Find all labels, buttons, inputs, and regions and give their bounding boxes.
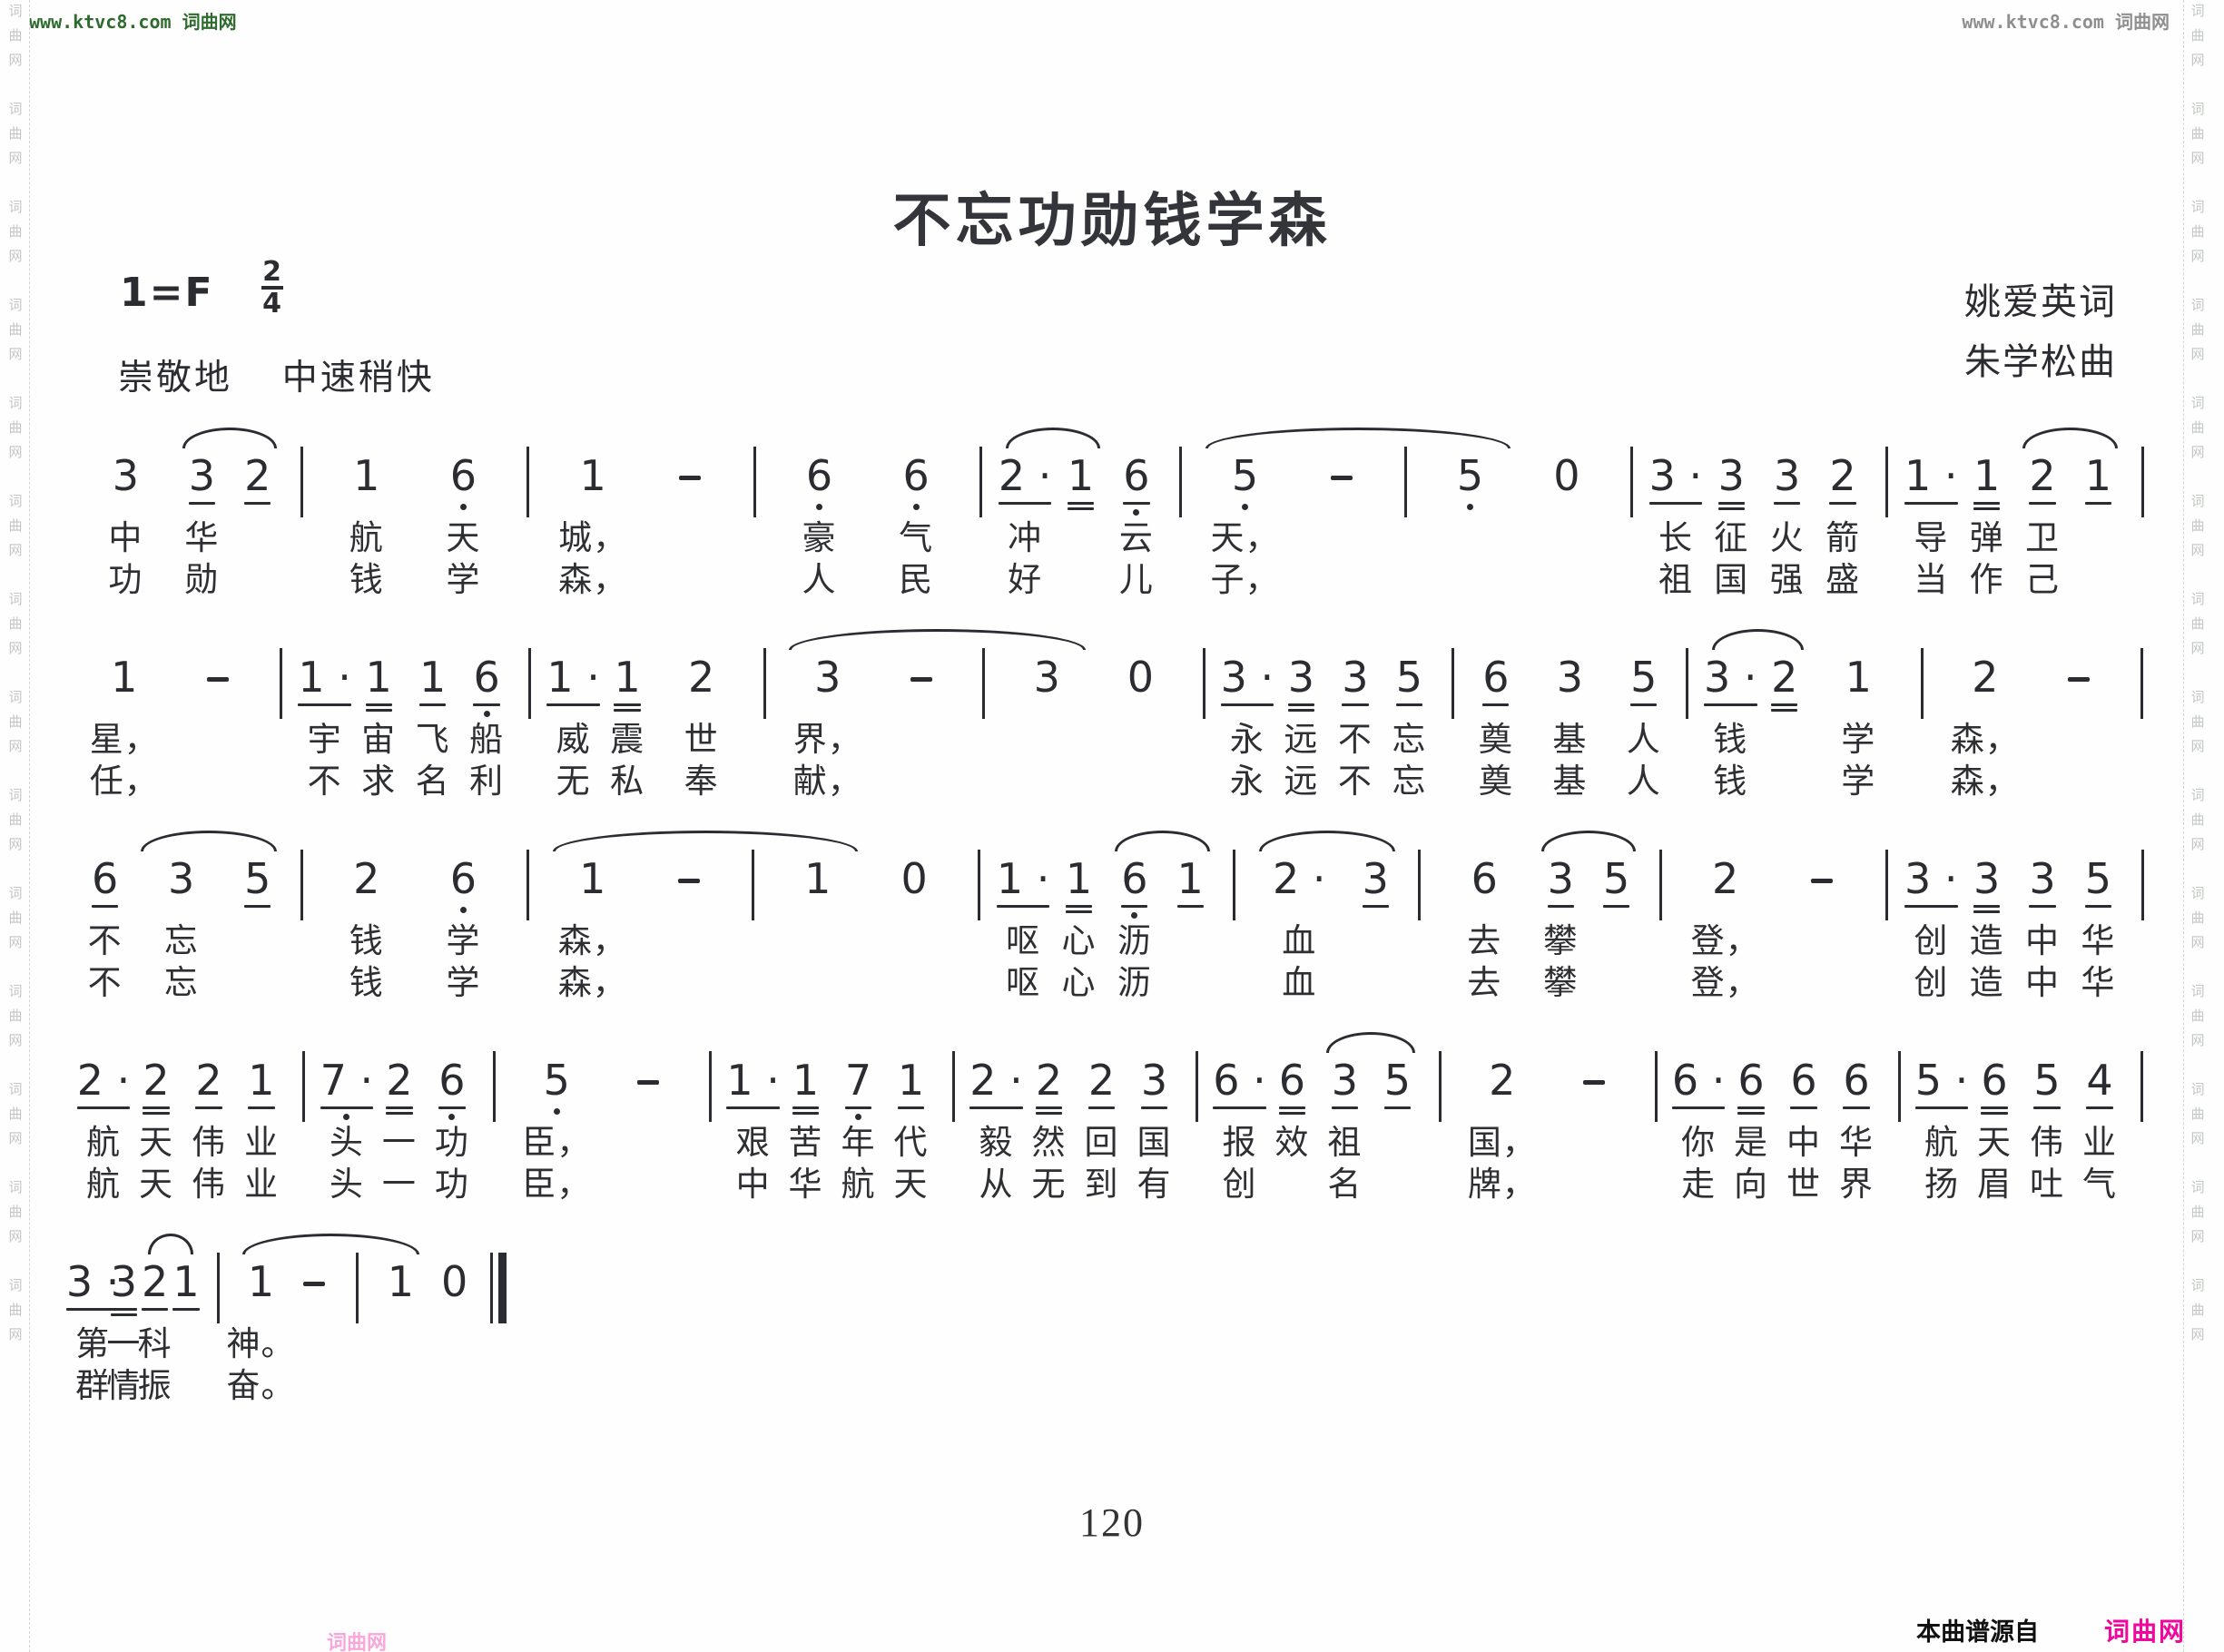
slur-group: 3忘忘5 [133, 831, 285, 1006]
page-title: 不忘功勋钱学森 [0, 174, 2224, 258]
barline [512, 428, 545, 519]
note-cell: 1神。奋。 [234, 1234, 288, 1409]
lyric-syllable: 震 [610, 721, 645, 762]
lyric-syllable [644, 1165, 653, 1207]
lyric-syllable: 第 [75, 1325, 110, 1367]
note-cell: 7年航 [832, 1033, 885, 1207]
lyric-syllable [1817, 922, 1826, 964]
note-cell: 6效 [1265, 1033, 1318, 1207]
lyric-syllable: 是 [1734, 1124, 1768, 1165]
slur-group: 5天，子， 5 [1197, 428, 1519, 603]
lyric-syllable: 钱 [349, 561, 384, 603]
lyric-syllable [2074, 721, 2083, 762]
lyric-syllable: 一 [382, 1124, 417, 1165]
lyric-syllable: 名 [416, 762, 450, 804]
lyric-syllable: 任， [90, 762, 159, 804]
duration-dash [171, 630, 264, 804]
lyric-syllable: 向 [1734, 1165, 1768, 1207]
barline [938, 1033, 970, 1124]
barline [1180, 1033, 1213, 1124]
lyric-syllable [910, 964, 919, 1006]
meter-numerator: 2 [262, 259, 281, 285]
note-cell: 5伟吐 [2021, 1033, 2073, 1207]
lyric-syllable: 弹 [1970, 519, 2004, 561]
lyric-syllable: 沥 [1117, 922, 1152, 964]
slur-group: 2卫己1 [2014, 428, 2126, 603]
slur-group: 6沥沥1 [1107, 831, 1218, 1006]
note-cell: 5 [1422, 428, 1519, 603]
lyric-syllable [1371, 964, 1380, 1006]
note-cell: 1 ·威无 [546, 630, 600, 804]
lyric-syllable: 国 [1137, 1124, 1171, 1165]
lyric-syllable: 世 [1786, 1165, 1821, 1207]
lyric-syllable: 回 [1084, 1124, 1118, 1165]
note-cell: 1心心 [1051, 831, 1107, 1006]
music-system-5: 3 ·第群3一情2科振1 1神。奋。 1 0 [77, 1234, 515, 1409]
note-cell: 6奠奠 [1469, 630, 1522, 804]
lyric-syllable: 星， [90, 721, 159, 762]
lyric-syllable: 勋 [184, 561, 219, 603]
footer-source-logo: 词曲网 [2104, 1612, 2186, 1648]
lyric-syllable: 献， [793, 762, 862, 804]
lyric-syllable: 宙 [361, 721, 396, 762]
lyric-syllable: 群 [75, 1367, 110, 1409]
lyric-syllable [1186, 922, 1195, 964]
barline [512, 831, 545, 922]
lyric-syllable: 好 [1008, 561, 1042, 603]
lyric-syllable [396, 1367, 405, 1409]
lyric-syllable: 国， [1468, 1124, 1537, 1165]
note-cell: 5 [1589, 831, 1644, 1006]
lyric-syllable: 远 [1284, 721, 1318, 762]
lyric-syllable [1076, 561, 1085, 603]
key-signature: 1=F 2 4 [120, 268, 283, 326]
barline [1218, 831, 1251, 922]
note-cell: 2一一 [373, 1033, 426, 1207]
note-cell: 1城，森， [545, 428, 642, 603]
lyric-syllable: 征 [1714, 519, 1748, 561]
lyric-syllable: 不 [88, 964, 123, 1006]
barline [694, 1033, 727, 1124]
lyric-syllable: 不 [88, 922, 123, 964]
note-cell: 6华界 [1830, 1033, 1883, 1207]
lyric-syllable [253, 561, 262, 603]
lyric-syllable: 飞 [416, 721, 450, 762]
lyric-syllable [916, 721, 925, 762]
lyric-syllable: 头 [330, 1165, 364, 1207]
lyric-syllable: 振 [138, 1367, 172, 1409]
lyric-syllable: 到 [1084, 1165, 1118, 1207]
note-cell: 7 ·头头 [320, 1033, 373, 1207]
lyric-syllable: 忘 [1392, 762, 1426, 804]
lyric-syllable: 奠 [1479, 721, 1513, 762]
duration-dash [288, 1234, 341, 1409]
lyric-syllable: 天 [894, 1165, 929, 1207]
lyric-syllable: 学 [446, 964, 480, 1006]
barline [265, 630, 298, 721]
lyric-syllable [685, 519, 694, 561]
barline [965, 428, 998, 519]
lyric-syllable: 华 [184, 519, 219, 561]
lyric-syllable: 忘 [1392, 721, 1426, 762]
note-cell: 6沥沥 [1107, 831, 1162, 1006]
note-cell: 3 [1000, 630, 1094, 804]
barline [962, 831, 995, 922]
lyric-syllable: 永 [1230, 762, 1265, 804]
lyric-syllable: 箭 [1825, 519, 1860, 561]
lyric-syllable: 中 [736, 1165, 771, 1207]
lyric-syllable [182, 1325, 191, 1367]
lyric-syllable: 天 [139, 1124, 173, 1165]
lyric-syllable: 森， [558, 964, 627, 1006]
footer-source: 本曲谱源自 词曲网 [1916, 1612, 2186, 1648]
barline [478, 1033, 511, 1124]
lyric-syllable: 森， [1951, 762, 2020, 804]
lyric-syllable [253, 922, 262, 964]
note-cell: 3基基 [1523, 630, 1617, 804]
note-cell: 3 ·长祖 [1648, 428, 1703, 603]
note-cell: 5华华 [2071, 831, 2126, 1006]
lyric-syllable: 从 [979, 1165, 1014, 1207]
lyric-syllable: 学 [1841, 721, 1875, 762]
note-cell: 2国，牌， [1456, 1033, 1548, 1207]
note-cell: 3 ·第群 [77, 1234, 108, 1409]
note-cell: 5人人 [1617, 630, 1670, 804]
lyric-syllable: 功 [435, 1165, 469, 1207]
lyric-syllable: 界， [793, 721, 862, 762]
lyric-syllable: 忘 [164, 964, 199, 1006]
note-cell: 1弹作 [1959, 428, 2014, 603]
lyric-syllable [2093, 519, 2102, 561]
lyric-syllable: 攀 [1543, 922, 1578, 964]
barline [2126, 1033, 2159, 1124]
lyric-syllable: 人 [1627, 762, 1661, 804]
lyric-syllable: 代 [894, 1124, 929, 1165]
note-cell: 3界，献， [781, 630, 874, 804]
lyric-syllable: 钱 [349, 922, 384, 964]
watermark-top-left: www.ktvc8.com 词曲网 [29, 7, 237, 34]
lyric-syllable: 盛 [1825, 561, 1860, 603]
lyric-syllable: 创 [1914, 922, 1948, 964]
note-cell: 5 ·航扬 [1915, 1033, 1968, 1207]
lyric-syllable: 气 [2082, 1165, 2117, 1207]
lyric-syllable [644, 1124, 653, 1165]
lyric-syllable: 年 [841, 1124, 876, 1165]
lyric-syllable [1287, 1165, 1296, 1207]
lyric-syllable: 火 [1770, 519, 1805, 561]
lyric-syllable: 牌， [1468, 1165, 1537, 1207]
note-cell: 3华勋 [174, 428, 230, 603]
note-cell: 5忘忘 [1383, 630, 1436, 804]
lyric-syllable [1392, 1124, 1402, 1165]
music-system-2: 1星，任， 1 ·宇不1宙求1飞名6船利1 ·威无1震私2世奉3界，献， 3 0… [77, 630, 2159, 804]
lyric-syllable: 冲 [1008, 519, 1042, 561]
lyric-syllable: 臣， [522, 1124, 591, 1165]
lyric-syllable [813, 922, 822, 964]
lyric-syllable: 天 [139, 1165, 173, 1207]
barline [1905, 630, 1938, 721]
lyric-syllable: 去 [1467, 964, 1501, 1006]
rest-cell: 0 [1519, 428, 1616, 603]
note-cell: 2 ·冲好 [998, 428, 1053, 603]
note-cell: 1宙求 [351, 630, 405, 804]
note-cell: 3火强 [1759, 428, 1815, 603]
lyric-syllable [1611, 964, 1620, 1006]
note-cell: 6是向 [1725, 1033, 1777, 1207]
note-cell: 1 [374, 1234, 428, 1409]
lyric-syllable: 航 [349, 519, 384, 561]
lyric-syllable: 登， [1691, 922, 1760, 964]
lyric-syllable: 创 [1914, 964, 1948, 1006]
lyric-syllable [182, 1367, 191, 1409]
lyric-syllable: 求 [361, 762, 396, 804]
slur-group: 2 ·冲好1 [998, 428, 1109, 603]
barline [2126, 428, 2159, 519]
note-cell: 1航钱 [318, 428, 415, 603]
barline [748, 630, 781, 721]
lyric-syllable: 造 [1970, 964, 2004, 1006]
barline [1165, 428, 1197, 519]
footer-source-label: 本曲谱源自 [1916, 1612, 2039, 1647]
note-cell: 6 ·报创 [1213, 1033, 1265, 1207]
lyric-syllable [1336, 561, 1345, 603]
lyric-syllable: 界 [1839, 1165, 1874, 1207]
composer-credit: 朱学松曲 [1964, 332, 2117, 392]
barline [2126, 831, 2159, 922]
key-note: 1=F [120, 268, 214, 319]
lyric-syllable: 世 [684, 721, 719, 762]
note-cell: 1业业 [235, 1033, 288, 1207]
note-cell: 2科振 [140, 1234, 171, 1409]
note-cell: 1代天 [885, 1033, 938, 1207]
lyric-syllable: 情 [106, 1367, 141, 1409]
lyric-syllable: 航 [1924, 1124, 1959, 1165]
lyric-syllable [1186, 964, 1195, 1006]
note-cell: 1 [1053, 428, 1108, 603]
note-cell: 1 ·宇不 [298, 630, 351, 804]
lyric-syllable: 航 [86, 1165, 121, 1207]
duration-dash [603, 1033, 694, 1207]
note-cell: 1 [770, 831, 866, 1006]
lyric-syllable: 云 [1119, 519, 1154, 561]
note-cell: 3中中 [2014, 831, 2070, 1006]
lyric-syllable: 扬 [1924, 1165, 1959, 1207]
note-cell: 2世奉 [654, 630, 748, 804]
lyric-syllable [450, 1367, 459, 1409]
note-cell: 3远远 [1274, 630, 1328, 804]
lyric-syllable: 航 [841, 1165, 876, 1207]
lyric-syllable: 眉 [1977, 1165, 2012, 1207]
lyric-syllable: 威 [556, 721, 591, 762]
lyric-syllable: 华 [1839, 1124, 1874, 1165]
lyric-syllable: 科 [138, 1325, 172, 1367]
lyric-syllable: 利 [469, 762, 504, 804]
lyric-syllable: 业 [244, 1165, 279, 1207]
note-cell: 3 ·创创 [1904, 831, 1959, 1006]
barline [1644, 831, 1677, 922]
lyric-syllable: 学 [446, 922, 480, 964]
lyric-syllable: 奠 [1479, 762, 1513, 804]
lyric-syllable: 艰 [736, 1124, 771, 1165]
lyric-syllable: 呕 [1006, 964, 1040, 1006]
lyric-syllable: 儿 [1119, 561, 1154, 603]
meter-denominator: 4 [262, 290, 281, 317]
lyric-syllable: 毅 [979, 1124, 1014, 1165]
lyric-syllable: 吐 [2030, 1165, 2064, 1207]
lyric-syllable: 宇 [308, 721, 342, 762]
note-cell: 1 ·呕呕 [995, 831, 1050, 1006]
lyric-syllable: 不 [1338, 721, 1373, 762]
lyric-syllable: 不 [1338, 762, 1373, 804]
barline [1871, 831, 1904, 922]
note-cell: 2钱钱 [318, 831, 415, 1006]
note-cell: 2箭盛 [1815, 428, 1870, 603]
lyric-syllable: 祖 [1658, 561, 1693, 603]
lyric-syllable: 一 [382, 1165, 417, 1207]
note-cell: 3造造 [1959, 831, 2014, 1006]
note-cell: 5天，子， [1197, 428, 1294, 603]
note-cell: 3 ·钱钱 [1704, 630, 1758, 804]
note-cell: 1森，森， [545, 831, 641, 1006]
slur-group: 3界，献， 3 [781, 630, 1093, 804]
slur-group: 2科振1 [140, 1234, 202, 1409]
lyric-syllable: 创 [1222, 1165, 1256, 1207]
barline [1883, 1033, 1915, 1124]
barline [288, 1033, 320, 1124]
lyric-syllable [916, 762, 925, 804]
lyric-syllable: 业 [244, 1124, 279, 1165]
note-cell: 3 ·永永 [1220, 630, 1274, 804]
rest-cell: 0 [1094, 630, 1187, 804]
lyric-syllable: 天 [1977, 1124, 2012, 1165]
note-cell: 2回到 [1075, 1033, 1127, 1207]
barline [285, 831, 318, 922]
lyric-syllable: 船 [469, 721, 504, 762]
lyric-syllable [310, 1367, 319, 1409]
lyric-syllable: 华 [789, 1165, 823, 1207]
note-cell: 1 [171, 1234, 202, 1409]
lyric-syllable: 航 [86, 1124, 121, 1165]
lyric-syllable [1780, 762, 1789, 804]
lyric-syllable: 钱 [349, 964, 384, 1006]
note-cell: 2天天 [130, 1033, 182, 1207]
duration-dash [641, 831, 737, 1006]
tempo-marking: 中速稍快 [282, 359, 435, 398]
note-cell: 1飞名 [406, 630, 459, 804]
lyric-syllable: 作 [1970, 561, 2004, 603]
lyric-syllable [1780, 721, 1789, 762]
slur-group: 3祖名5 [1318, 1033, 1423, 1207]
lyric-syllable: 神。 [227, 1325, 296, 1367]
note-cell: 6天学 [415, 428, 512, 603]
note-cell: 3忘忘 [133, 831, 230, 1006]
note-cell: 2 [230, 428, 285, 603]
lyric-syllable: 苦 [789, 1124, 823, 1165]
lyric-syllable: 子， [1211, 561, 1280, 603]
lyric-syllable: 学 [446, 561, 480, 603]
page-number: 120 [0, 1500, 2224, 1546]
lyric-syllable: 森， [558, 561, 627, 603]
note-cell: 1星，任， [77, 630, 171, 804]
lyric-syllable [253, 519, 262, 561]
note-cell: 2 ·航航 [77, 1033, 130, 1207]
lyric-syllable [253, 964, 262, 1006]
note-cell: 3国有 [1127, 1033, 1180, 1207]
rest-cell: 0 [866, 831, 963, 1006]
expression-text: 崇敬地 [118, 359, 232, 398]
barline [1639, 1033, 1672, 1124]
note-cell: 6豪人 [771, 428, 868, 603]
note-cell: 2伟伟 [182, 1033, 235, 1207]
note-cell: 2然无 [1023, 1033, 1076, 1207]
music-system-1: 3中功3华勋2 1航钱6天学1城，森， 6豪人6气民2 ·冲好1 6云儿5天，子… [77, 428, 2159, 603]
lyric-syllable [910, 922, 919, 964]
lyric-syllable: 去 [1467, 922, 1501, 964]
expression-marking: 崇敬地 中速稍快 [118, 349, 435, 400]
note-cell: 3不不 [1328, 630, 1382, 804]
lyric-syllable: 当 [1914, 561, 1948, 603]
lyric-syllable [213, 762, 222, 804]
note-cell: 2 ·毅从 [970, 1033, 1023, 1207]
lyric-syllable: 人 [802, 561, 836, 603]
lyric-syllable: 祖 [1327, 1124, 1362, 1165]
note-cell: 1 [2071, 428, 2126, 603]
lyric-syllable: 中 [108, 519, 143, 561]
lyric-syllable: 伟 [192, 1124, 226, 1165]
lyric-syllable: 血 [1282, 964, 1316, 1006]
music-system-3: 6不不3忘忘5 2钱钱6学学1森，森， 1 0 1 ·呕呕1心心6沥沥1 2 ·… [77, 831, 2159, 1006]
note-cell: 3一情 [108, 1234, 139, 1409]
barline [1871, 428, 1904, 519]
lyric-syllable [1562, 561, 1571, 603]
lyric-syllable: 心 [1062, 964, 1097, 1006]
lyric-syllable: 无 [1031, 1165, 1066, 1207]
lyric-syllable: 报 [1222, 1124, 1256, 1165]
lyric-syllable: 中 [1786, 1124, 1821, 1165]
lyric-syllable [1611, 922, 1620, 964]
footer-faint-logo: 词曲网 [327, 1627, 387, 1652]
lyric-syllable [1042, 721, 1051, 762]
sheet-music-page: www.ktvc8.com 词曲网 www.ktvc8.com 词曲网 词 曲 … [0, 0, 2224, 1652]
note-cell: 3攀攀 [1533, 831, 1589, 1006]
lyric-syllable [1136, 721, 1145, 762]
lyric-syllable: 华 [2081, 922, 2115, 964]
lyric-syllable: 血 [1282, 922, 1316, 964]
note-cell: 6中世 [1777, 1033, 1830, 1207]
duration-dash [1294, 428, 1390, 603]
lyric-syllable: 豪 [802, 519, 836, 561]
duration-dash [874, 630, 968, 804]
lyric-syllable: 卫 [2025, 519, 2060, 561]
lyric-syllable: 头 [330, 1124, 364, 1165]
lyric-syllable [1392, 1165, 1402, 1207]
lyric-syllable: 沥 [1117, 964, 1152, 1006]
lyric-syllable [684, 964, 694, 1006]
note-cell: 2森，森， [1938, 630, 2032, 804]
lyric-syllable: 基 [1552, 762, 1587, 804]
lyric-syllable: 然 [1031, 1124, 1066, 1165]
lyric-syllable: 忘 [164, 922, 199, 964]
note-cell: 6 ·你走 [1672, 1033, 1725, 1207]
note-cell: 5 [230, 831, 285, 1006]
note-cell: 4业气 [2073, 1033, 2126, 1207]
lyric-syllable: 你 [1681, 1124, 1716, 1165]
lyric-syllable: 强 [1770, 561, 1805, 603]
lyric-syllable [213, 721, 222, 762]
duration-dash [2032, 630, 2125, 804]
lyric-syllable: 民 [899, 561, 933, 603]
duration-dash [641, 428, 738, 603]
